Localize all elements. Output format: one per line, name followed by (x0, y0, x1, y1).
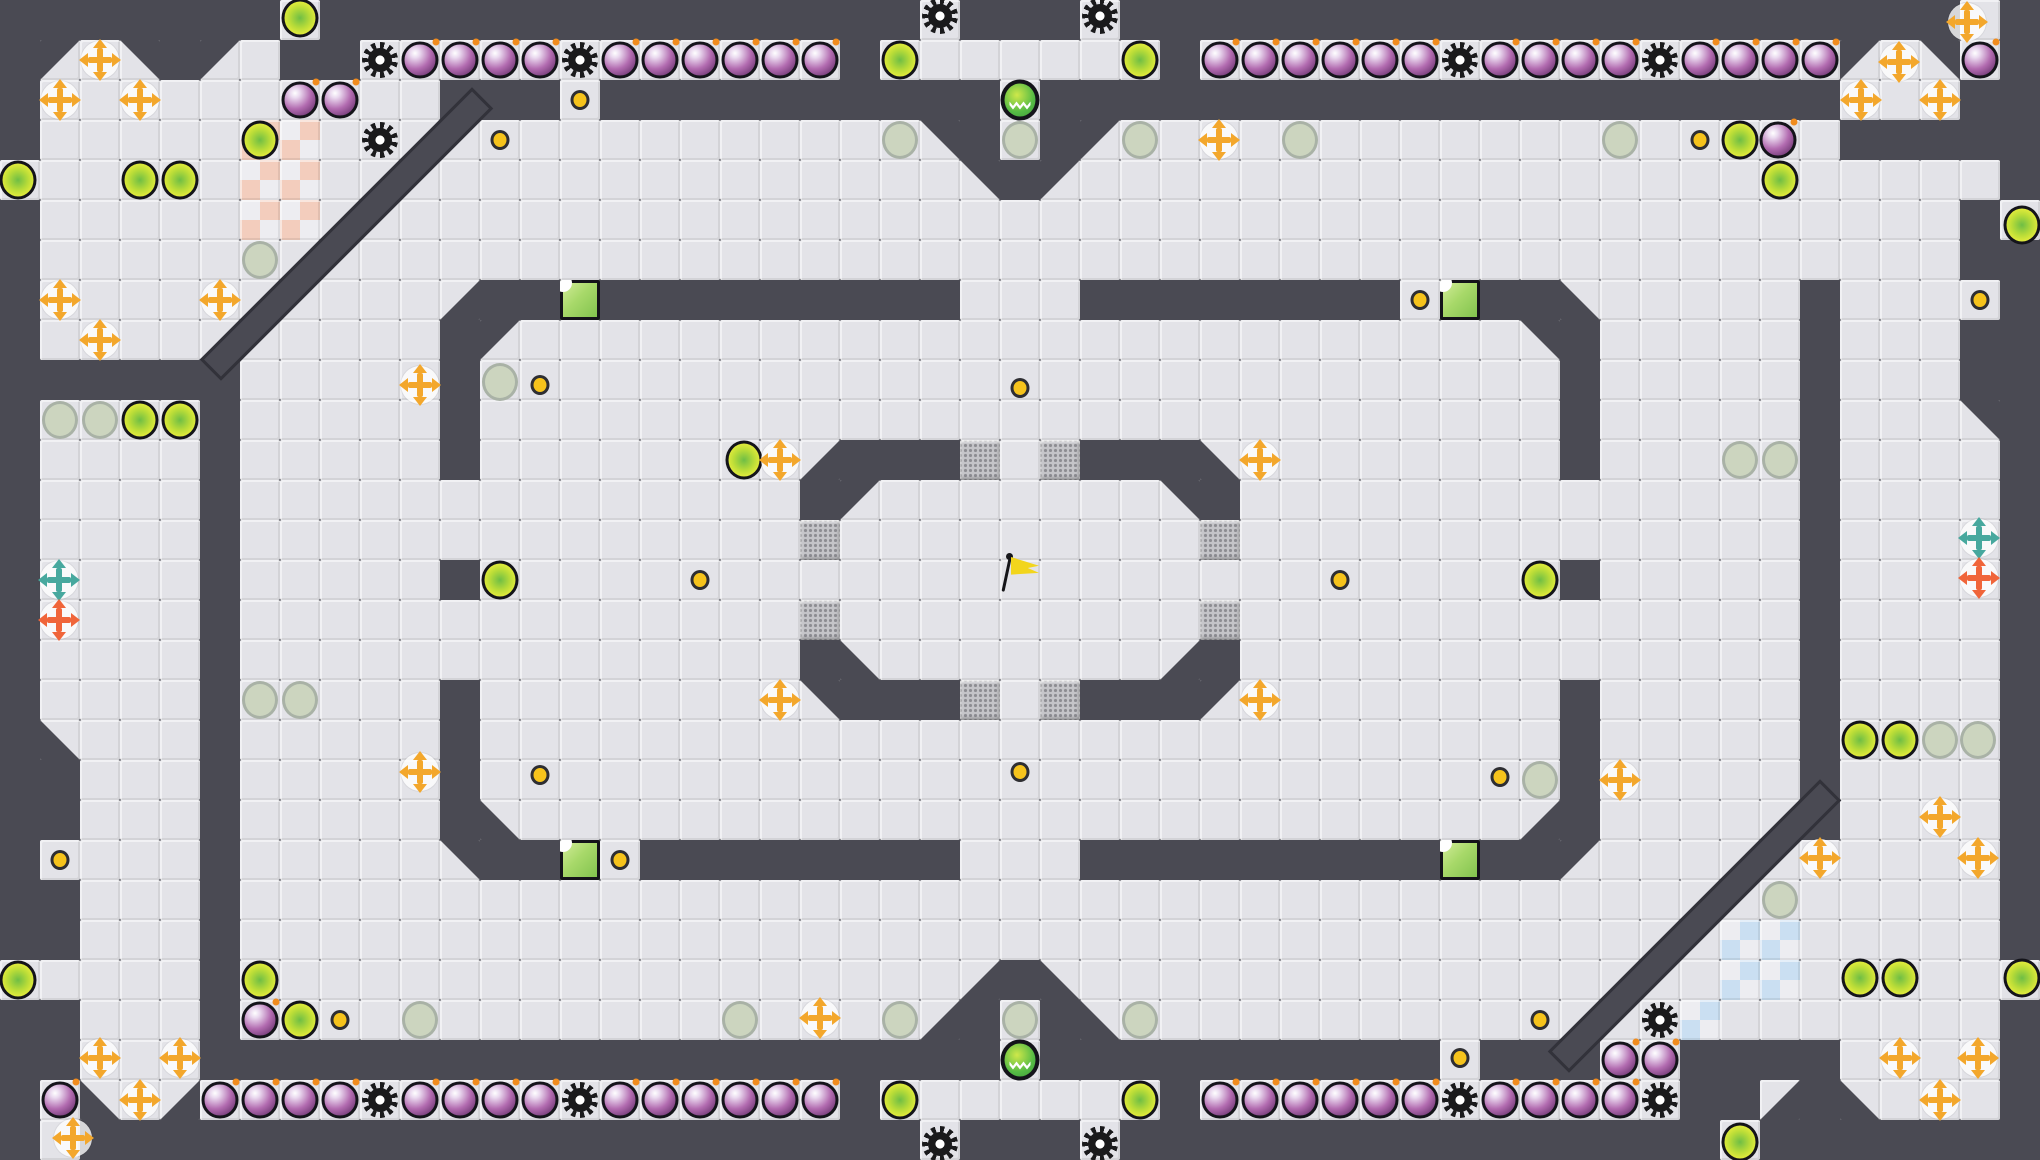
wall-diagonal (160, 1080, 200, 1120)
floor-tile (120, 920, 160, 960)
floor-tile (40, 40, 80, 80)
cross-bar (48, 297, 72, 303)
bomb-icon (1562, 42, 1599, 79)
floor-tile (720, 800, 760, 840)
bomb-fuse-icon (673, 1079, 680, 1086)
boost-pad-icon (882, 41, 919, 80)
floor-tile (880, 800, 920, 840)
floor-tile (240, 80, 280, 120)
floor-tile (1200, 800, 1240, 840)
floor-tile (1360, 600, 1400, 640)
floor-tile (1960, 440, 2000, 480)
floor-tile (240, 40, 280, 80)
floor-tile (1080, 720, 1120, 760)
powerup-cross-yellow-icon (54, 1119, 92, 1157)
floor-tile (920, 480, 960, 520)
cross-bar (768, 457, 792, 463)
floor-tile (920, 160, 960, 200)
floor-tile (1680, 400, 1720, 440)
bomb-fuse-icon (1353, 1079, 1360, 1086)
powerup-cross-yellow-icon (801, 999, 839, 1037)
arrow-right-icon (792, 453, 801, 467)
floor-tile (520, 800, 560, 840)
blue-endzone-tile (1760, 960, 1800, 1000)
floor-tile (1760, 360, 1800, 400)
bomb-fuse-icon (1993, 39, 2000, 46)
floor-tile (120, 720, 160, 760)
powerup-cross-yellow-icon (761, 681, 799, 719)
bomb-icon (682, 42, 719, 79)
floor-tile (600, 960, 640, 1000)
bomb-icon (1682, 42, 1719, 79)
floor-tile (480, 240, 520, 280)
floor-tile (720, 520, 760, 560)
yellow-dot-icon (531, 765, 550, 785)
floor-tile (1720, 560, 1760, 600)
bomb-icon (1760, 122, 1797, 159)
bomb-icon (522, 42, 559, 79)
floor-tile (120, 480, 160, 520)
floor-tile (280, 360, 320, 400)
arrow-up-icon (133, 1079, 147, 1088)
floor-tile (1640, 680, 1680, 720)
inactive-powerup-icon (1602, 121, 1638, 159)
floor-tile (480, 200, 520, 240)
floor-tile (240, 360, 280, 400)
floor-tile (640, 680, 680, 720)
floor-tile (1840, 280, 1880, 320)
floor-tile (1960, 480, 2000, 520)
floor-tile (680, 600, 720, 640)
floor-tile (1760, 480, 1800, 520)
arrow-down-icon (1253, 472, 1267, 481)
floor-tile (1840, 760, 1880, 800)
floor-tile (120, 1000, 160, 1040)
floor-tile (760, 560, 800, 600)
floor-tile (320, 760, 360, 800)
bomb-icon (1482, 1082, 1519, 1119)
cross-bar (1248, 457, 1272, 463)
floor-tile (720, 760, 760, 800)
floor-tile (520, 440, 560, 480)
floor-tile (1280, 440, 1320, 480)
bomb-fuse-icon (713, 1079, 720, 1086)
floor-tile (800, 160, 840, 200)
floor-tile (1960, 1080, 2000, 1120)
bomb-icon (642, 1082, 679, 1119)
arrow-down-icon (1212, 152, 1226, 161)
floor-tile (1880, 760, 1920, 800)
powerup-cross-orange-icon (40, 601, 78, 639)
floor-tile (1320, 320, 1360, 360)
floor-tile (560, 600, 600, 640)
arrow-down-icon (1971, 870, 1985, 879)
floor-tile (440, 840, 480, 880)
cross-bar (1928, 97, 1952, 103)
floor-tile (240, 480, 280, 520)
bomb-icon (1562, 1082, 1599, 1119)
floor-tile (1760, 400, 1800, 440)
arrow-up-icon (1253, 679, 1267, 688)
yellow-dot-icon (1531, 1010, 1550, 1030)
bomb-icon (1282, 42, 1319, 79)
floor-tile (1760, 240, 1800, 280)
boost-pad-icon (1722, 121, 1759, 160)
floor-tile (600, 520, 640, 560)
floor-tile (480, 760, 520, 800)
floor-tile (480, 880, 520, 920)
floor-tile (1640, 800, 1680, 840)
floor-tile (1920, 920, 1960, 960)
powerup-cross-yellow-icon (121, 81, 159, 119)
floor-tile (1560, 920, 1600, 960)
inactive-powerup-icon (1282, 121, 1318, 159)
floor-tile (280, 600, 320, 640)
gate-tile (1200, 520, 1240, 560)
arrow-down-icon (1813, 870, 1827, 879)
arrow-right-icon (832, 1011, 841, 1025)
floor-tile (1400, 800, 1440, 840)
floor-tile (120, 1040, 160, 1080)
floor-tile (1880, 880, 1920, 920)
arrow-right-icon (232, 293, 241, 307)
boost-pad-icon (242, 121, 279, 160)
floor-tile (920, 640, 960, 680)
floor-tile (1640, 120, 1680, 160)
floor-tile (1080, 600, 1120, 640)
floor-tile (520, 720, 560, 760)
floor-tile (1200, 960, 1240, 1000)
floor-tile (1320, 960, 1360, 1000)
red-endzone-tile (240, 200, 280, 240)
floor-tile (120, 600, 160, 640)
bomb-icon (1802, 42, 1839, 79)
floor-tile (1640, 200, 1680, 240)
arrow-down-icon (133, 112, 147, 121)
floor-tile (400, 280, 440, 320)
floor-tile (1000, 720, 1040, 760)
floor-tile (1160, 600, 1200, 640)
floor-tile (1280, 160, 1320, 200)
floor-tile (880, 960, 920, 1000)
floor-tile (240, 880, 280, 920)
floor-tile (1320, 440, 1360, 480)
spike-gear-icon (562, 1082, 598, 1118)
floor-tile (1880, 240, 1920, 280)
floor-tile (1840, 600, 1880, 640)
floor-tile (1240, 360, 1280, 400)
floor-tile (1200, 240, 1240, 280)
floor-tile (920, 800, 960, 840)
floor-tile (1840, 640, 1880, 680)
floor-tile (1520, 120, 1560, 160)
floor-tile (760, 120, 800, 160)
bomb-icon (1362, 1082, 1399, 1119)
arrow-left-icon (1599, 773, 1608, 787)
floor-tile (600, 1000, 640, 1040)
boost-pad-icon (2004, 206, 2040, 245)
bomb-icon (1642, 1042, 1679, 1079)
floor-tile (1040, 600, 1080, 640)
bomb-icon (1242, 42, 1279, 79)
cross-bar (47, 577, 71, 583)
cross-bar (1967, 575, 1991, 581)
floor-tile (760, 240, 800, 280)
floor-tile (240, 920, 280, 960)
floor-tile (640, 480, 680, 520)
floor-tile (240, 440, 280, 480)
powerup-cross-yellow-icon (81, 1039, 119, 1077)
floor-tile (1800, 200, 1840, 240)
floor-tile (320, 680, 360, 720)
floor-tile (1120, 880, 1160, 920)
floor-tile (1160, 960, 1200, 1000)
arrow-down-icon (1933, 112, 1947, 121)
floor-tile (1880, 400, 1920, 440)
wall-diagonal (1760, 1080, 1800, 1120)
wall-diagonal (1200, 440, 1240, 480)
bomb-fuse-icon (1513, 1079, 1520, 1086)
bomb-icon (522, 1082, 559, 1119)
arrow-left-icon (38, 613, 47, 627)
bomb-fuse-icon (1393, 39, 1400, 46)
arrow-left-icon (399, 378, 408, 392)
floor-tile (1960, 400, 2000, 440)
floor-tile (760, 640, 800, 680)
floor-tile (840, 760, 880, 800)
floor-tile (880, 160, 920, 200)
floor-tile (1440, 680, 1480, 720)
floor-tile (1360, 160, 1400, 200)
floor-tile (40, 200, 80, 240)
bomb-icon (322, 1082, 359, 1119)
inactive-powerup-icon (1122, 121, 1158, 159)
arrow-down-icon (1253, 712, 1267, 721)
floor-tile (640, 920, 680, 960)
floor-tile (1680, 760, 1720, 800)
floor-tile (1320, 400, 1360, 440)
floor-tile (1240, 920, 1280, 960)
bomb-icon (1602, 1082, 1639, 1119)
floor-tile (1960, 640, 2000, 680)
floor-tile (1720, 200, 1760, 240)
floor-tile (360, 920, 400, 960)
arrow-up-icon (133, 79, 147, 88)
gate-tile (800, 600, 840, 640)
floor-tile (840, 360, 880, 400)
floor-tile (1160, 920, 1200, 960)
floor-tile (1520, 240, 1560, 280)
floor-tile (720, 360, 760, 400)
red-endzone-tile (280, 120, 320, 160)
floor-tile (1040, 240, 1080, 280)
floor-tile (1960, 920, 2000, 960)
arrow-up-icon (53, 279, 67, 288)
floor-tile (520, 520, 560, 560)
floor-tile (720, 640, 760, 680)
floor-tile (1920, 960, 1960, 1000)
floor-tile (600, 440, 640, 480)
floor-tile (920, 960, 960, 1000)
floor-tile (720, 720, 760, 760)
arrow-left-icon (1198, 133, 1207, 147)
floor-tile (1080, 800, 1120, 840)
floor-tile (1000, 440, 1040, 480)
arrow-up-icon (213, 279, 227, 288)
game-map-viewport[interactable] (0, 0, 2040, 1160)
floor-tile (1000, 280, 1040, 320)
floor-tile (1920, 840, 1960, 880)
floor-tile (1400, 760, 1440, 800)
floor-tile (1600, 280, 1640, 320)
floor-tile (600, 680, 640, 720)
floor-tile (400, 560, 440, 600)
floor-tile (160, 680, 200, 720)
wall-diagonal (120, 40, 160, 80)
floor-tile (1440, 120, 1480, 160)
floor-tile (1560, 960, 1600, 1000)
floor-tile (1120, 920, 1160, 960)
floor-tile (680, 640, 720, 680)
floor-tile (160, 240, 200, 280)
floor-tile (1080, 960, 1120, 1000)
cross-bar (1928, 1097, 1952, 1103)
floor-tile (880, 240, 920, 280)
bomb-icon (602, 42, 639, 79)
floor-tile (400, 960, 440, 1000)
floor-tile (1400, 920, 1440, 960)
floor-tile (1680, 360, 1720, 400)
floor-tile (1560, 520, 1600, 560)
bomb-icon (1202, 1082, 1239, 1119)
bomb-fuse-icon (233, 1079, 240, 1086)
cross-bar (47, 617, 71, 623)
gear-hub-icon (928, 1132, 952, 1156)
floor-tile (1320, 120, 1360, 160)
bomb-icon (722, 1082, 759, 1119)
yellow-dot-icon (571, 90, 590, 110)
arrow-left-icon (1799, 851, 1808, 865)
floor-tile (1240, 240, 1280, 280)
boost-pad-icon (1842, 959, 1879, 998)
arrow-right-icon (1832, 851, 1841, 865)
floor-tile (1400, 520, 1440, 560)
bomb-icon (242, 1082, 279, 1119)
arrow-up-icon (1972, 557, 1986, 566)
gear-hub-icon (1648, 1088, 1672, 1112)
floor-tile (1720, 480, 1760, 520)
floor-tile (640, 440, 680, 480)
floor-tile (280, 560, 320, 600)
floor-tile (880, 760, 920, 800)
floor-tile (1320, 680, 1360, 720)
floor-tile (1280, 800, 1320, 840)
floor-tile (480, 640, 520, 680)
floor-tile (880, 720, 920, 760)
floor-tile (1560, 880, 1600, 920)
arrow-down-icon (93, 352, 107, 361)
floor-tile (1840, 200, 1880, 240)
floor-tile (1760, 680, 1800, 720)
floor-tile (1360, 400, 1400, 440)
floor-tile (800, 440, 840, 480)
bomb-fuse-icon (753, 1079, 760, 1086)
floor-tile (600, 240, 640, 280)
inactive-powerup-icon (1960, 721, 1996, 759)
arrow-right-icon (792, 693, 801, 707)
bomb-fuse-icon (1673, 1039, 1680, 1046)
floor-tile (840, 520, 880, 560)
floor-tile (1840, 440, 1880, 480)
floor-tile (1680, 960, 1720, 1000)
floor-tile (1080, 920, 1120, 960)
floor-tile (400, 840, 440, 880)
floor-tile (840, 960, 880, 1000)
floor-tile (1920, 280, 1960, 320)
floor-tile (640, 720, 680, 760)
floor-tile (1080, 200, 1120, 240)
powerup-cross-yellow-icon (121, 1081, 159, 1119)
floor-tile (560, 480, 600, 520)
floor-tile (1040, 840, 1080, 880)
floor-tile (1800, 160, 1840, 200)
bomb-fuse-icon (1353, 39, 1360, 46)
floor-tile (1400, 640, 1440, 680)
floor-tile (240, 800, 280, 840)
floor-tile (1160, 360, 1200, 400)
arrow-down-icon (1892, 74, 1906, 83)
floor-tile (1520, 640, 1560, 680)
arrow-right-icon (152, 1093, 161, 1107)
bomb-fuse-icon (1233, 39, 1240, 46)
floor-tile (1080, 400, 1120, 440)
portal-icon (1001, 80, 1040, 121)
floor-tile (1560, 200, 1600, 240)
floor-tile (200, 40, 240, 80)
inactive-powerup-icon (402, 1001, 438, 1039)
floor-tile (1720, 640, 1760, 680)
floor-tile (1760, 600, 1800, 640)
red-endzone-tile (240, 160, 280, 200)
floor-tile (160, 440, 200, 480)
bomb-icon (42, 1082, 79, 1119)
yellow-dot-icon (1491, 767, 1510, 787)
floor-tile (1320, 160, 1360, 200)
floor-tile (680, 1000, 720, 1040)
floor-tile (1720, 800, 1760, 840)
floor-tile (1920, 680, 1960, 720)
floor-tile (320, 160, 360, 200)
floor-tile (320, 880, 360, 920)
floor-tile (920, 880, 960, 920)
floor-tile (520, 600, 560, 640)
floor-tile (1880, 920, 1920, 960)
floor-tile (160, 800, 200, 840)
floor-tile (1640, 440, 1680, 480)
floor-tile (1520, 480, 1560, 520)
floor-tile (1920, 360, 1960, 400)
wall-diagonal (920, 120, 960, 160)
floor-tile (1760, 560, 1800, 600)
floor-tile (40, 240, 80, 280)
floor-tile (120, 200, 160, 240)
inactive-powerup-icon (1122, 1001, 1158, 1039)
floor-tile (1160, 800, 1200, 840)
boost-pad-icon (1722, 1123, 1759, 1160)
button-tile (560, 280, 600, 320)
floor-tile (1160, 200, 1200, 240)
floor-tile (520, 200, 560, 240)
